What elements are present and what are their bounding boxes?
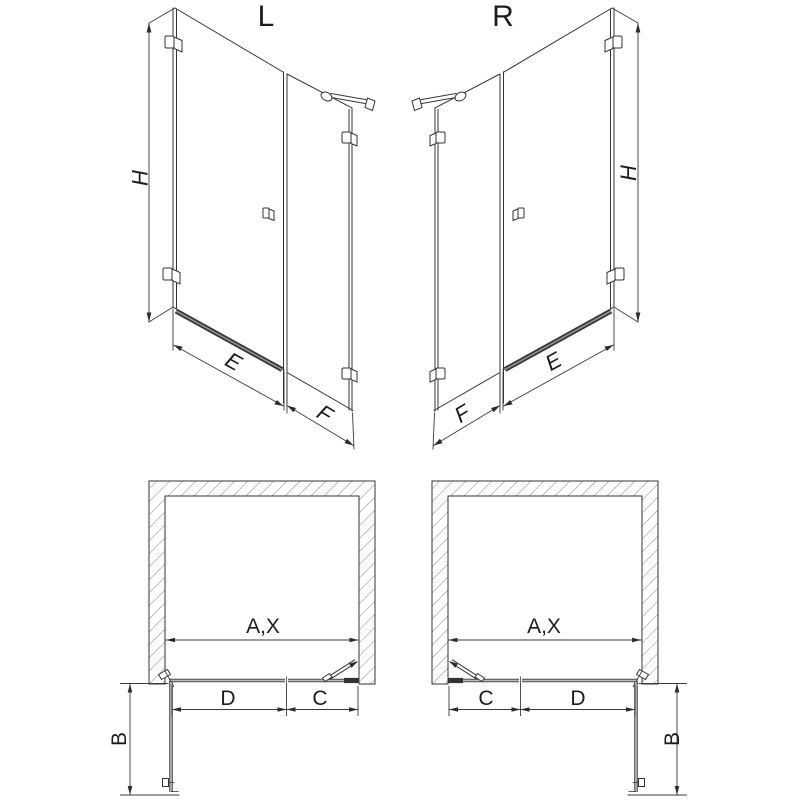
label-opening-width-left: A,X [246,615,280,638]
elevation-right-geometry [412,8,640,449]
plan-right-walls [432,481,658,684]
elevation-left-title: L [258,0,275,33]
label-plan-door-right: D [570,687,585,710]
label-door-width-left: E [221,347,246,376]
plan-right-view: A,X C D B [432,481,687,795]
label-plan-panel-left: C [312,687,327,710]
elevation-left-geometry [147,8,375,449]
shower-door-dimension-diagram: L H E F R H E F A,X D C B A,X C D B [0,0,800,800]
label-opening-width-right: A,X [527,615,561,638]
label-plan-panel-right: C [478,687,493,710]
elevation-left-view: L H E F [128,0,376,449]
technical-drawing-page: L H E F R H E F A,X D C B A,X C D B [0,0,800,800]
label-height-left: H [128,170,153,186]
label-door-width-right: E [541,347,566,376]
label-panel-width-right: F [450,399,476,428]
label-door-depth-left: B [108,732,131,746]
elevation-right-view: R H E F [412,0,641,449]
label-door-depth-right: B [661,732,684,746]
plan-left-view: A,X D C B [108,481,375,795]
label-plan-door-left: D [220,687,235,710]
elevation-right-title: R [492,0,514,33]
plan-left-walls [149,481,375,684]
label-panel-width-left: F [313,399,339,428]
label-height-right: H [616,165,641,181]
